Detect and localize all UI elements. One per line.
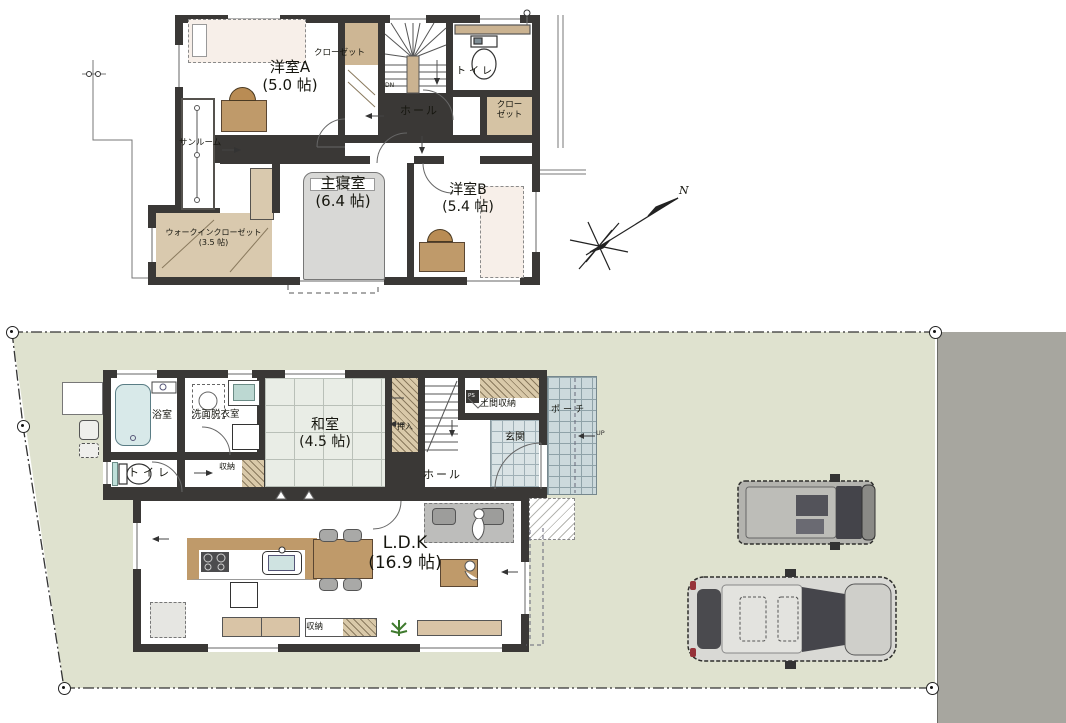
genkan-label: 玄関: [505, 432, 525, 444]
window: [521, 562, 529, 614]
closet-a-label: クローゼット: [314, 48, 365, 58]
wall: [465, 413, 539, 420]
ldk-storage-hatch: [343, 619, 376, 636]
master-size: (6.4 帖): [293, 192, 393, 210]
closet-b-label: クロー ゼット: [487, 100, 532, 120]
toilet-mat: [112, 462, 118, 486]
wall: [458, 378, 465, 420]
room-b-name: 洋室B: [418, 182, 518, 199]
armchair: [432, 508, 456, 525]
north-arrow: [570, 198, 678, 270]
stairs-down-label: DN: [385, 82, 394, 89]
wall: [272, 163, 280, 213]
outdoor-deck: [62, 382, 103, 415]
dining-chair: [319, 529, 338, 542]
front-door-opening: [539, 445, 547, 487]
master-name: 主寝室: [293, 174, 393, 192]
porch-label: ポーチ: [551, 405, 587, 416]
window: [420, 644, 502, 652]
boundary-marker-icon: [926, 682, 939, 695]
furniture-placeholder: [150, 602, 186, 638]
kitchen-island: [230, 582, 258, 608]
toilet-2f-label: トイレ: [456, 66, 495, 78]
wall: [220, 156, 370, 164]
room-a-name: 洋室A: [230, 58, 350, 76]
wall: [480, 156, 532, 164]
closet-b-line2: ゼット: [487, 110, 532, 120]
changing-mat: [232, 424, 260, 450]
window: [228, 370, 252, 378]
washroom-label: 洗面脱衣室: [192, 409, 240, 420]
toilet-1f-label: トイレ: [128, 466, 173, 479]
desk: [221, 100, 267, 132]
heat-pump-unit: [79, 443, 99, 458]
boundary-marker-icon: [58, 682, 71, 695]
hall-1f-label: ホール: [423, 468, 462, 481]
sunroom-label: サンルーム: [179, 138, 221, 148]
window: [532, 192, 540, 252]
water-heater-unit: [79, 420, 99, 440]
wic-size: (3.5 帖): [151, 238, 276, 248]
tv-board: [417, 620, 502, 636]
eave-hatch: [529, 498, 575, 540]
doma-storage-canopy: [480, 378, 539, 398]
toilet-2f: [453, 23, 532, 90]
ldk-name: L.D.K: [350, 533, 460, 553]
ldk-size: (16.9 帖): [350, 553, 460, 573]
porch-tile: [547, 376, 597, 495]
hall-storage: [242, 460, 264, 487]
dining-chair: [319, 578, 338, 591]
window: [480, 15, 520, 23]
stove: [201, 552, 229, 572]
doma-storage-label: 土間収納: [480, 399, 516, 410]
desk: [419, 242, 465, 272]
stairs-2f: [385, 23, 446, 93]
window: [208, 644, 278, 652]
window: [103, 462, 111, 484]
washitsu-name: 和室: [275, 417, 375, 434]
room-a-label: 洋室A (5.0 帖): [230, 58, 350, 94]
window: [467, 277, 520, 285]
master-bedroom-label: 主寝室 (6.4 帖): [293, 174, 393, 210]
bathtub: [115, 384, 151, 446]
room-b-size: (5.4 帖): [418, 199, 518, 216]
pipe-space-label: PS: [468, 393, 475, 400]
cabinet: [222, 617, 300, 637]
adjacent-road-area: [937, 332, 1066, 723]
window: [285, 370, 345, 378]
wic-label: ウォークインクローゼット (3.5 帖): [151, 228, 276, 247]
bath-label: 浴室: [152, 410, 172, 422]
boundary-marker-icon: [17, 420, 30, 433]
hall-2f-nook: [453, 97, 480, 135]
room-a-size: (5.0 帖): [230, 76, 350, 94]
window: [133, 523, 141, 569]
ldk-storage-label: 収納: [306, 622, 323, 632]
stairs-up-label: UP: [596, 430, 605, 438]
hall-storage-label: 収納: [219, 462, 235, 472]
balcony-eave-dash: [288, 285, 378, 293]
sink-bowl: [233, 384, 255, 401]
window: [390, 15, 426, 23]
window: [175, 45, 183, 87]
oshiire-label: 押入: [392, 422, 418, 432]
room-b-label: 洋室B (5.4 帖): [418, 182, 518, 216]
floorplan-canvas: 洋室A (5.0 帖) クローゼット トイレ ホール クロー ゼット サンルーム…: [0, 0, 1066, 723]
north-label: N: [679, 184, 689, 197]
washitsu-label: 和室 (4.5 帖): [275, 417, 375, 451]
kitchen-sink-bowl: [268, 555, 295, 571]
wall: [414, 156, 444, 164]
boundary-marker-icon: [6, 326, 19, 339]
wall: [407, 163, 414, 277]
pillow: [192, 24, 207, 57]
armchair: [480, 508, 504, 525]
walk-in-closet-arm: [250, 168, 274, 220]
oshiire-closet: [392, 378, 418, 452]
window: [117, 370, 157, 378]
genkan-tile: [490, 420, 539, 487]
closet-b-line1: クロー: [487, 100, 532, 110]
washitsu-size: (4.5 帖): [275, 434, 375, 451]
hall-2f-label: ホール: [400, 104, 439, 117]
sunroom: [181, 98, 215, 210]
boundary-marker-icon: [929, 326, 942, 339]
ldk-label: L.D.K (16.9 帖): [350, 533, 460, 574]
wic-name: ウォークインクローゼット: [151, 228, 276, 238]
dining-chair: [343, 578, 362, 591]
